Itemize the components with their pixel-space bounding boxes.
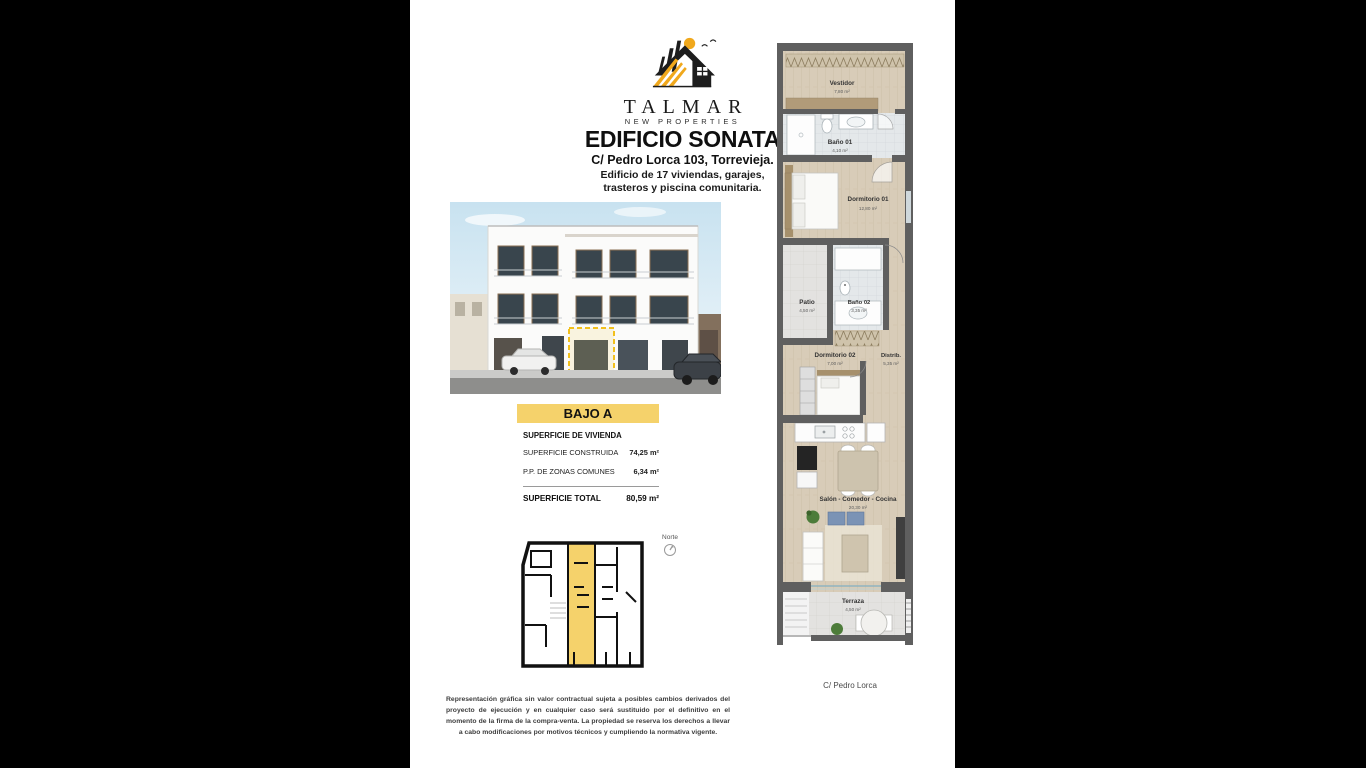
house-logo-icon — [636, 34, 730, 100]
armchair-blue — [847, 512, 864, 525]
room-label: Distrib. — [881, 353, 901, 359]
fridge — [797, 446, 817, 470]
row-label: SUPERFICIE CONSTRUIDA — [523, 448, 618, 457]
apartment-floor-plan: Vestidor 7,80 m² Baño 01 4,10 m² Dormito… — [777, 43, 913, 645]
legal-disclaimer: Representación gráfica sin valor contrac… — [446, 694, 730, 738]
hall-closet-hatch — [835, 331, 879, 346]
room-label: Salón - Comedor - Cocina — [820, 496, 897, 503]
compass-icon — [662, 541, 678, 557]
surface-table-header: SUPERFICIE DE VIVIENDA — [523, 431, 659, 440]
tv-unit — [896, 517, 905, 579]
room-area: 4,50 m² — [845, 607, 861, 612]
table-row: P.P. DE ZONAS COMUNES 6,34 m² — [523, 467, 659, 476]
room-label: Dormitorio 01 — [848, 196, 889, 203]
room-area: 5,35 m² — [883, 361, 899, 366]
north-label: Norte — [653, 534, 687, 541]
vestidor-wardrobe-hatch — [786, 54, 904, 67]
room-label: Vestidor — [830, 80, 855, 87]
screenshot-root: { "brand": { "name": "TALMAR", "tagline"… — [0, 0, 1366, 768]
north-indicator: Norte — [653, 534, 687, 562]
site-key-plan — [518, 537, 648, 672]
bed-dormitorio2 — [800, 367, 860, 415]
round-table — [861, 610, 887, 636]
unit-banner: BAJO A — [517, 404, 659, 423]
table-divider — [523, 486, 659, 487]
room-label: Baño 01 — [828, 139, 853, 146]
table-row: SUPERFICIE CONSTRUIDA 74,25 m² — [523, 448, 659, 457]
room-label: Dormitorio 02 — [815, 352, 856, 359]
room-label: Baño 02 — [848, 300, 871, 306]
sofa — [803, 532, 823, 581]
room-area: 4,50 m² — [799, 308, 815, 313]
room-label: Patio — [799, 299, 815, 306]
room-area: 20,30 m² — [849, 505, 868, 510]
street-label: C/ Pedro Lorca — [790, 681, 910, 690]
row-label: P.P. DE ZONAS COMUNES — [523, 467, 615, 476]
room-area: 3,35 m² — [851, 308, 867, 313]
row-value: 6,34 m² — [634, 467, 659, 476]
building-render-image — [450, 202, 721, 394]
row-value: 74,25 m² — [629, 448, 659, 457]
surface-table: SUPERFICIE DE VIVIENDA SUPERFICIE CONSTR… — [523, 431, 659, 503]
talmar-logo — [636, 34, 730, 100]
communal-stairs — [783, 592, 809, 635]
room-label: Terraza — [842, 598, 864, 605]
bed-dormitorio1 — [785, 165, 838, 237]
plant — [831, 623, 843, 635]
total-value: 80,59 m² — [626, 494, 659, 503]
table-total-row: SUPERFICIE TOTAL 80,59 m² — [523, 494, 659, 503]
room-area: 12,80 m² — [859, 206, 878, 211]
room-area: 7,00 m² — [827, 361, 843, 366]
total-label: SUPERFICIE TOTAL — [523, 494, 601, 503]
room-area: 4,10 m² — [832, 148, 848, 153]
brand-name-text: TALMAR — [624, 96, 749, 118]
patio-floor — [783, 245, 830, 338]
dining-table — [838, 445, 878, 496]
brochure-page: TALMAR NEW PROPERTIES EDIFICIO SONATA C/… — [410, 0, 955, 768]
armchair-blue — [828, 512, 845, 525]
coffee-table — [842, 535, 868, 572]
unit-highlight-box — [569, 328, 614, 374]
room-area: 7,80 m² — [834, 89, 850, 94]
